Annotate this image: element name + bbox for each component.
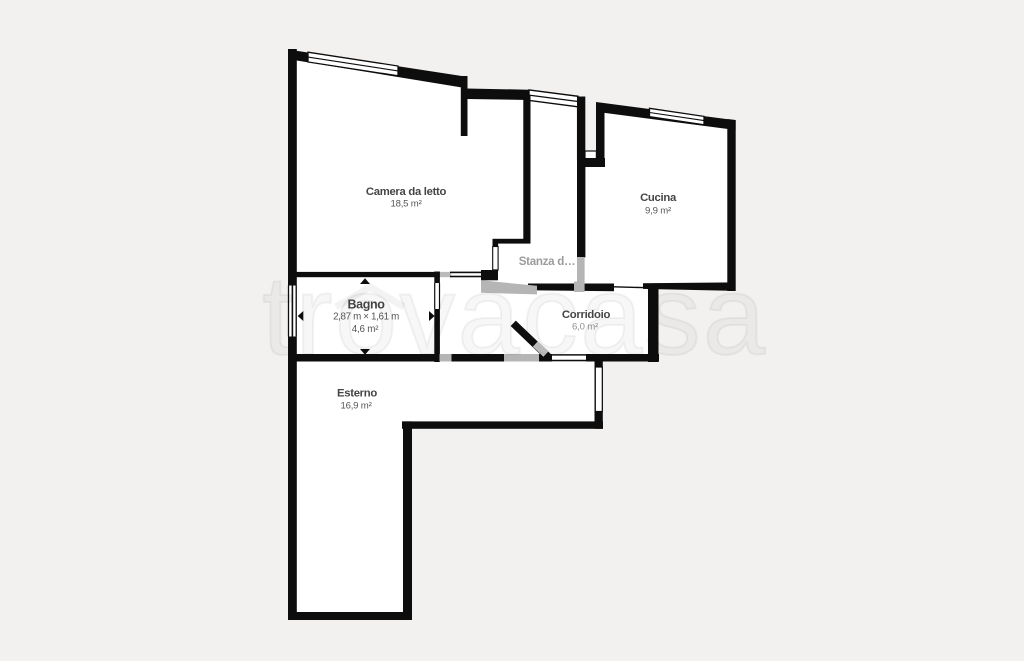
- svg-text:trovacasa: trovacasa: [262, 253, 767, 378]
- svg-text:Camera da letto: Camera da letto: [366, 186, 447, 198]
- svg-text:Cucina: Cucina: [640, 192, 677, 204]
- svg-text:16,9 m²: 16,9 m²: [340, 401, 372, 412]
- svg-text:Esterno: Esterno: [337, 388, 377, 400]
- svg-text:9,9 m²: 9,9 m²: [645, 206, 672, 217]
- svg-text:18,5 m²: 18,5 m²: [390, 199, 422, 210]
